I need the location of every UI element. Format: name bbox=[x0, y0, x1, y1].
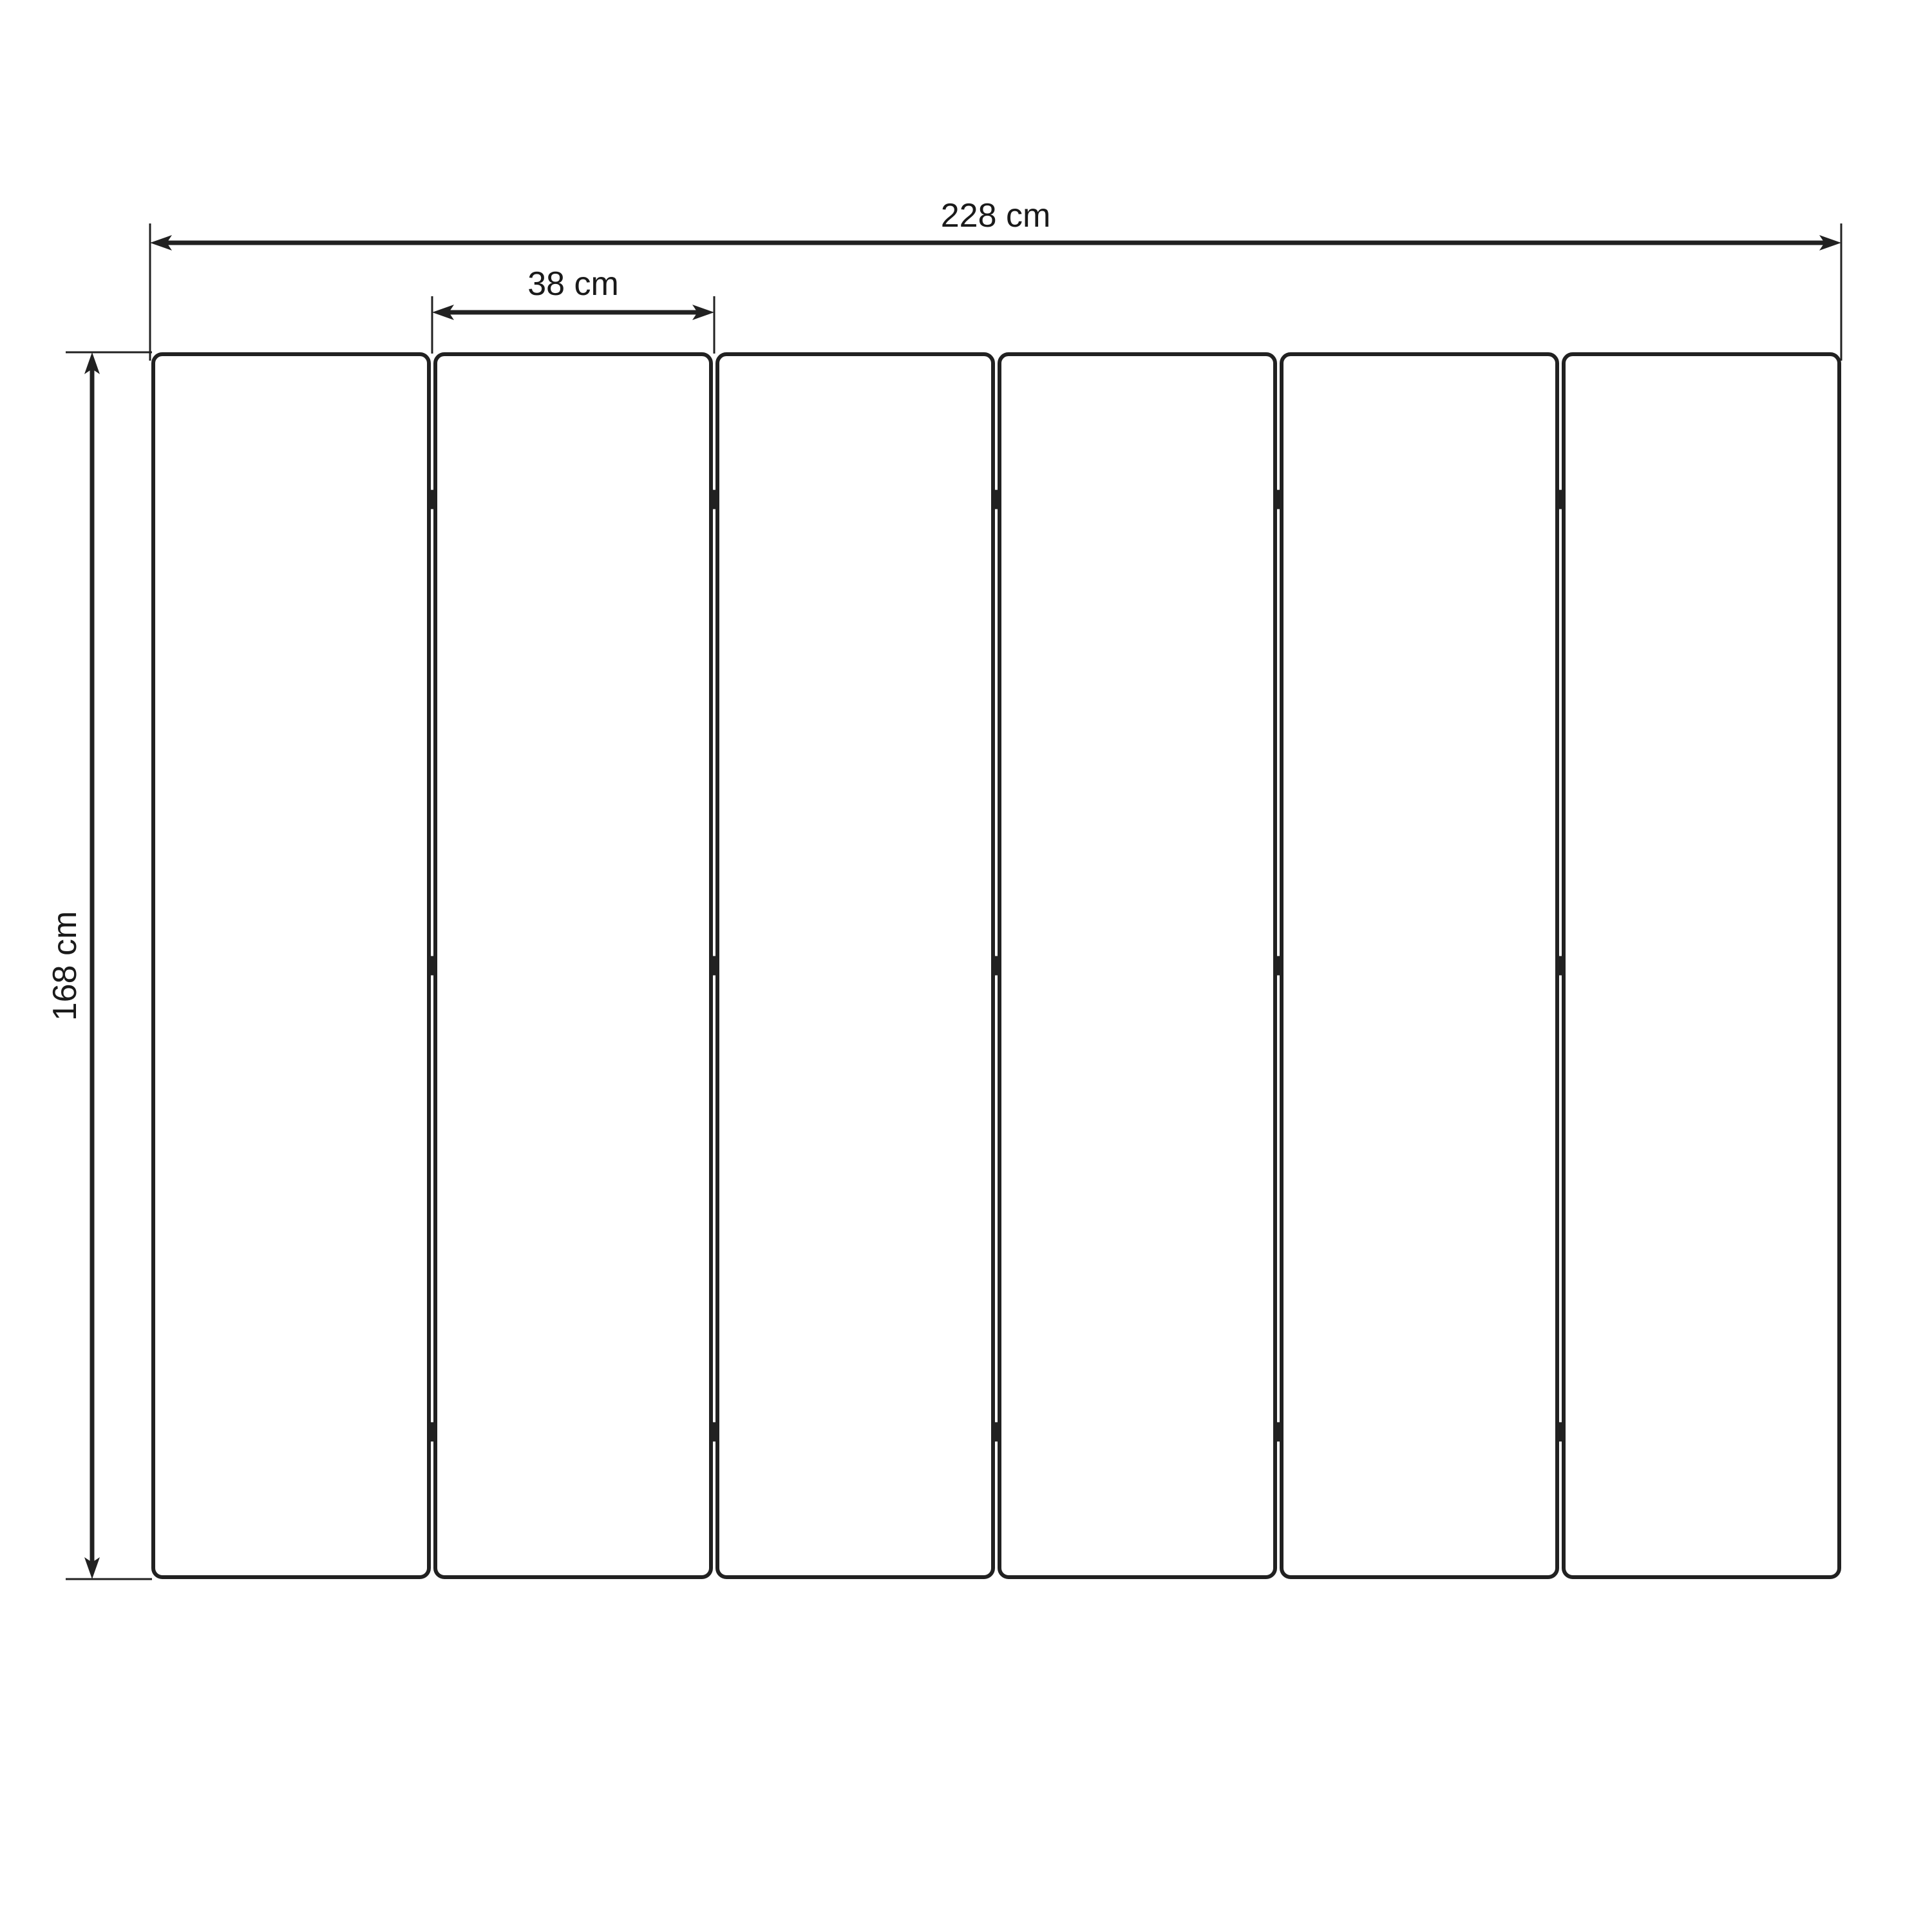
panel-4 bbox=[999, 354, 1275, 1577]
hinge-gap3-row3 bbox=[992, 1422, 1000, 1441]
hinge-gap4-row3 bbox=[1274, 1422, 1282, 1441]
total-width-label: 228 cm bbox=[941, 197, 1051, 234]
total-width-dimension: 228 cm bbox=[150, 197, 1841, 361]
hinge-gap4-row2 bbox=[1274, 956, 1282, 976]
hinge-gap1-row3 bbox=[428, 1422, 436, 1441]
panel-width-label: 38 cm bbox=[527, 265, 619, 303]
height-label: 168 cm bbox=[46, 911, 84, 1021]
hinges-group bbox=[428, 490, 1564, 1442]
hinge-gap5-row3 bbox=[1557, 1422, 1564, 1441]
panel-width-dimension: 38 cm bbox=[432, 265, 714, 354]
hinge-gap1-row2 bbox=[428, 956, 436, 976]
hinge-gap5-row2 bbox=[1557, 956, 1564, 976]
hinge-gap2-row2 bbox=[710, 956, 718, 976]
panel-6 bbox=[1564, 354, 1839, 1577]
panel-2 bbox=[435, 354, 711, 1577]
panel-5 bbox=[1282, 354, 1557, 1577]
hinge-gap1-row1 bbox=[428, 490, 436, 509]
hinge-gap4-row1 bbox=[1274, 490, 1282, 509]
folding-screen-diagram: 228 cm 38 cm 168 cm bbox=[0, 0, 1932, 1932]
hinge-gap2-row1 bbox=[710, 490, 718, 509]
hinge-gap2-row3 bbox=[710, 1422, 718, 1441]
hinge-gap3-row2 bbox=[992, 956, 1000, 976]
height-dimension: 168 cm bbox=[46, 352, 152, 1579]
panel-3 bbox=[717, 354, 993, 1577]
hinge-gap5-row1 bbox=[1557, 490, 1564, 509]
panel-1 bbox=[153, 354, 429, 1577]
hinge-gap3-row1 bbox=[992, 490, 1000, 509]
